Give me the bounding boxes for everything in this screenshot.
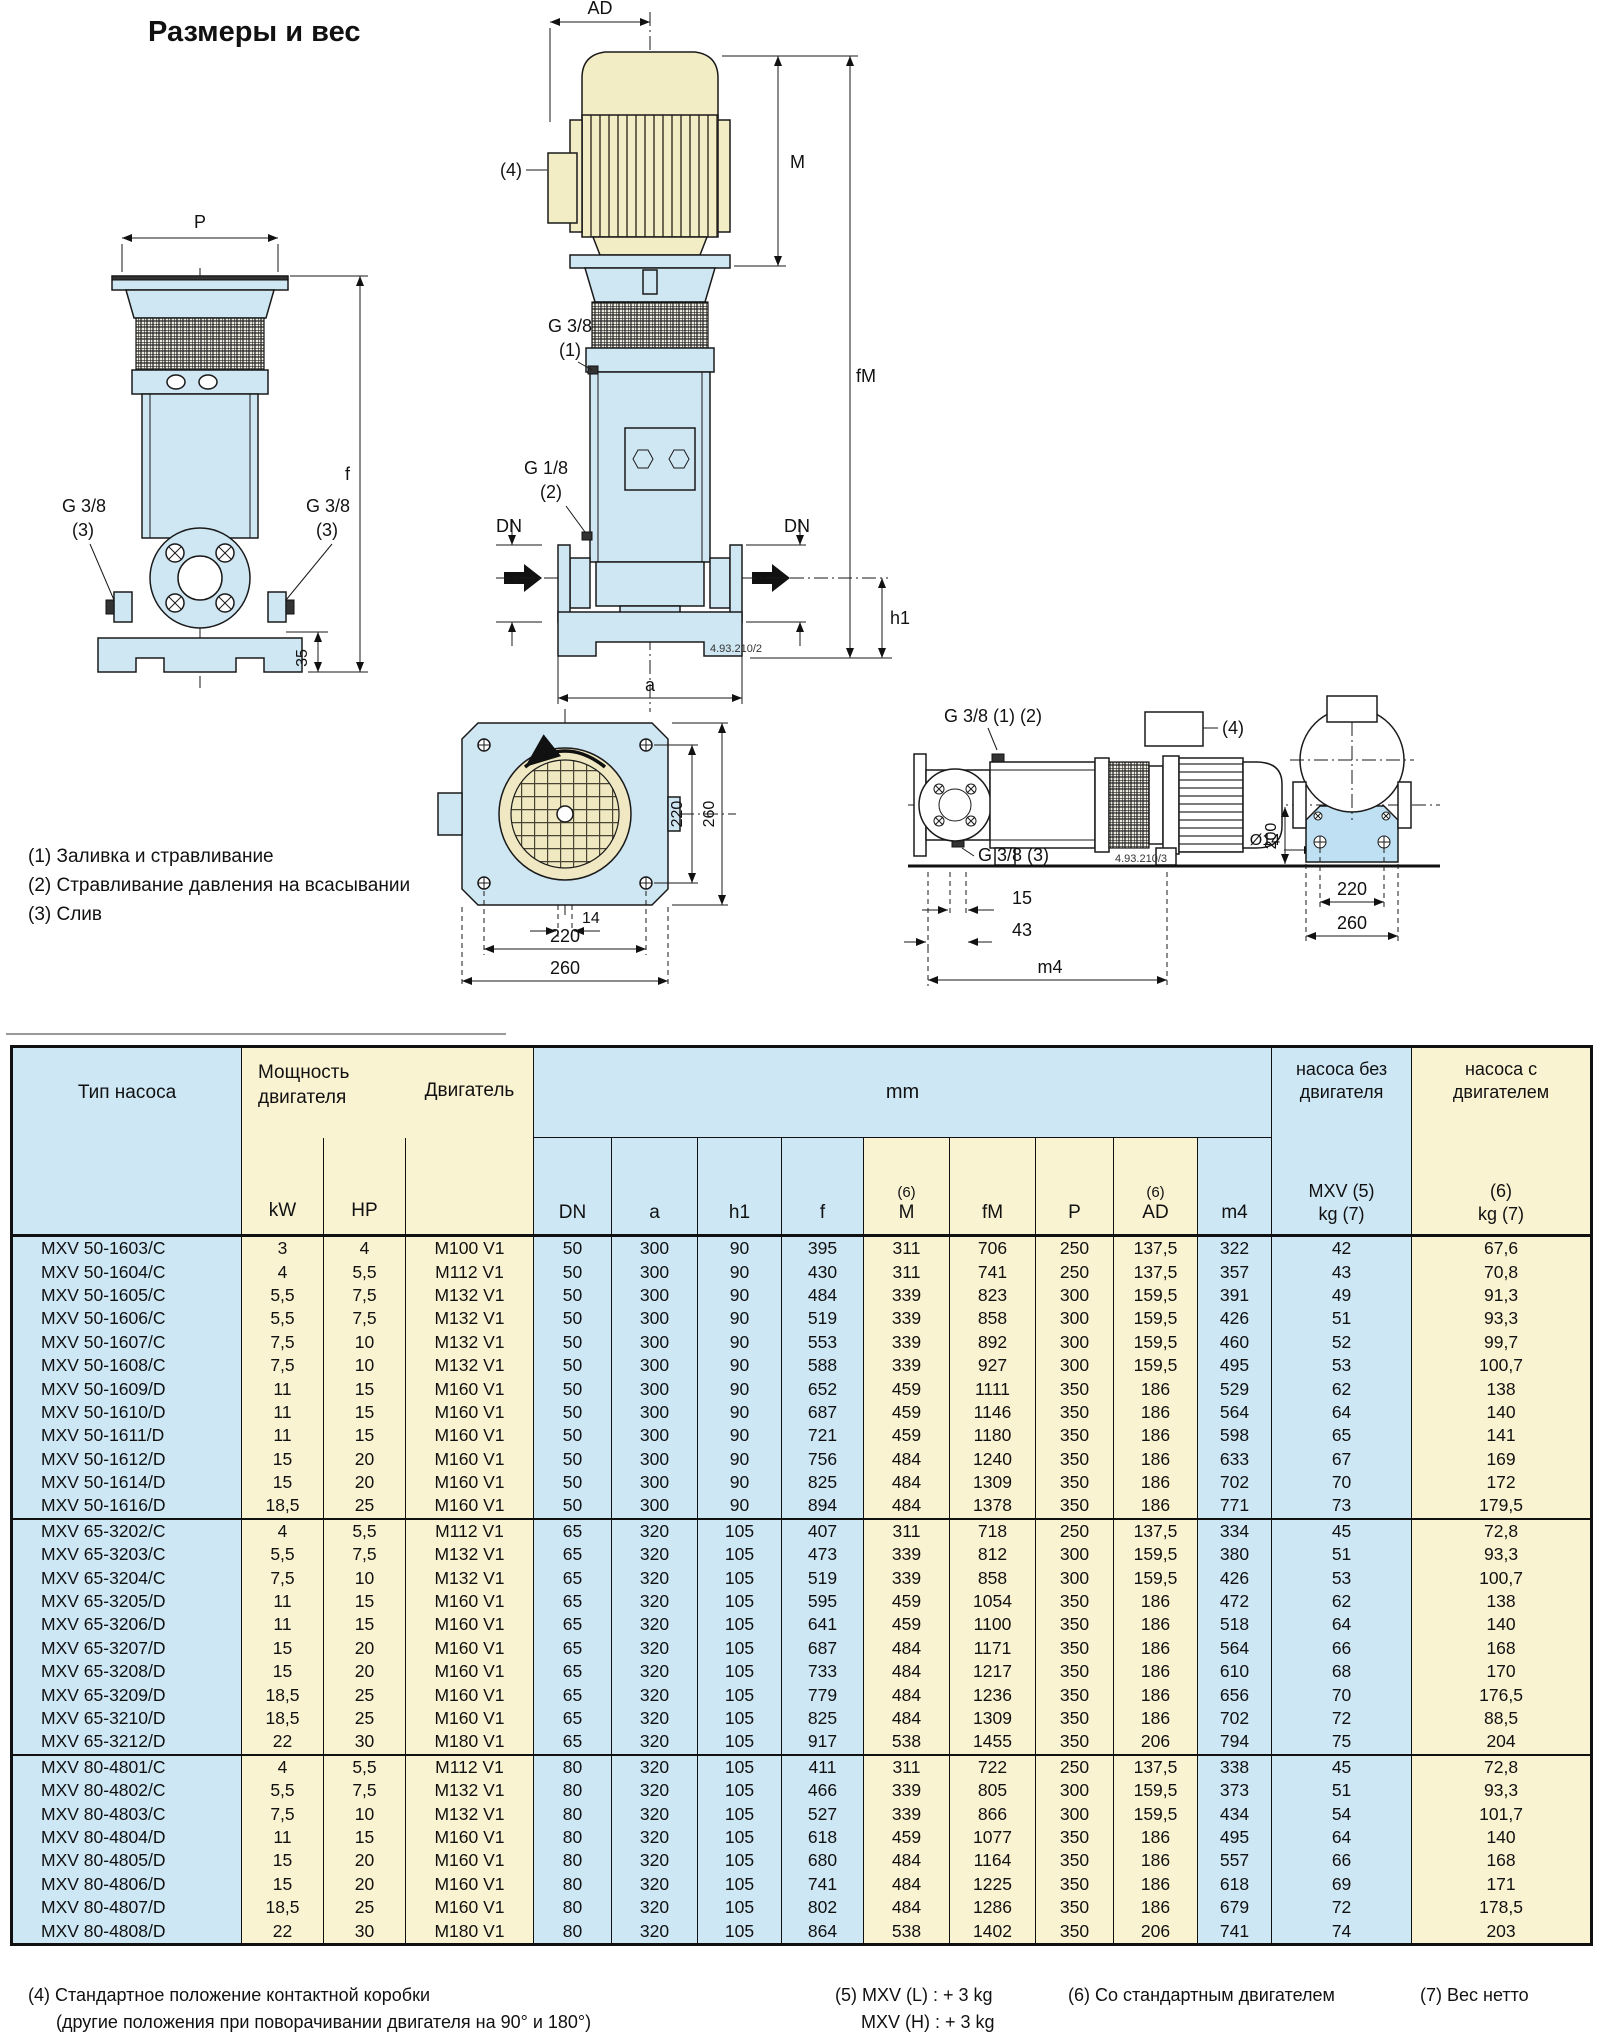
table-cell: 473 xyxy=(782,1543,864,1566)
table-cell: 1378 xyxy=(950,1494,1036,1518)
col-header-m4: m4 xyxy=(1198,1138,1272,1236)
table-cell: 1171 xyxy=(950,1637,1036,1660)
table-cell: 140 xyxy=(1412,1826,1592,1849)
table-cell: 15 xyxy=(324,1826,406,1849)
table-cell: 300 xyxy=(612,1448,698,1471)
table-cell: 484 xyxy=(864,1471,950,1494)
table-cell: M160 V1 xyxy=(406,1896,534,1919)
table-cell: 339 xyxy=(864,1566,950,1589)
table-cell: 300 xyxy=(612,1401,698,1424)
table-cell: 320 xyxy=(612,1637,698,1660)
table-cell: 484 xyxy=(864,1683,950,1706)
table-cell: 22 xyxy=(242,1919,324,1944)
table-cell: 779 xyxy=(782,1683,864,1706)
table-row: MXV 50-1611/D1115M160 V15030090721459118… xyxy=(12,1424,1592,1447)
table-row: MXV 50-1608/C7,510M132 V1503009058833992… xyxy=(12,1354,1592,1377)
table-cell: 484 xyxy=(864,1873,950,1896)
table-cell: 67,6 xyxy=(1412,1236,1592,1261)
table-cell: 320 xyxy=(612,1543,698,1566)
table-cell: M160 V1 xyxy=(406,1494,534,1518)
table-cell: 721 xyxy=(782,1424,864,1447)
motor xyxy=(548,52,730,268)
table-cell: 101,7 xyxy=(1412,1802,1592,1825)
table-cell: M160 V1 xyxy=(406,1401,534,1424)
table-row: MXV 80-4803/C7,510M132 V1803201055273398… xyxy=(12,1802,1592,1825)
table-cell: 90 xyxy=(698,1307,782,1330)
table-cell: M160 V1 xyxy=(406,1424,534,1447)
table-cell: 741 xyxy=(950,1260,1036,1283)
table-cell: 802 xyxy=(782,1896,864,1919)
table-cell: 20 xyxy=(324,1471,406,1494)
table-cell: 105 xyxy=(698,1543,782,1566)
table-cell: M112 V1 xyxy=(406,1755,534,1779)
table-cell: 1402 xyxy=(950,1919,1036,1944)
table-cell: 300 xyxy=(612,1494,698,1518)
table-cell: 426 xyxy=(1198,1307,1272,1330)
table-cell: 350 xyxy=(1036,1660,1114,1683)
table-cell: 380 xyxy=(1198,1543,1272,1566)
table-cell: 65 xyxy=(534,1590,612,1613)
table-cell: 519 xyxy=(782,1307,864,1330)
table-cell: 137,5 xyxy=(1114,1260,1198,1283)
port-ref-2: (2) xyxy=(540,482,562,502)
port-ref-3-left: (3) xyxy=(72,520,94,540)
dim-label-ad: AD xyxy=(587,0,612,18)
table-cell: MXV 65-3206/D xyxy=(12,1613,242,1636)
table-cell: 105 xyxy=(698,1590,782,1613)
table-cell: 350 xyxy=(1036,1377,1114,1400)
table-cell: 300 xyxy=(612,1424,698,1447)
table-cell: 1455 xyxy=(950,1730,1036,1754)
table-cell: 350 xyxy=(1036,1401,1114,1424)
table-cell: MXV 65-3203/C xyxy=(12,1543,242,1566)
dim-label-a: a xyxy=(645,675,656,695)
table-cell: 460 xyxy=(1198,1331,1272,1354)
pump-series-group: MXV 65-3202/C45,5M112 V16532010540731171… xyxy=(12,1519,1592,1755)
table-cell: 186 xyxy=(1114,1896,1198,1919)
table-cell: 45 xyxy=(1272,1519,1412,1543)
table-cell: 65 xyxy=(534,1519,612,1543)
table-row: MXV 80-4805/D1520M160 V18032010568048411… xyxy=(12,1849,1592,1872)
table-cell: 610 xyxy=(1198,1660,1272,1683)
table-cell: M160 V1 xyxy=(406,1873,534,1896)
table-cell: 75 xyxy=(1272,1730,1412,1754)
table-cell: 105 xyxy=(698,1826,782,1849)
table-cell: M112 V1 xyxy=(406,1260,534,1283)
dim-label-260: 260 xyxy=(1337,913,1367,933)
table-cell: 350 xyxy=(1036,1471,1114,1494)
table-cell: 350 xyxy=(1036,1849,1114,1872)
table-cell: 300 xyxy=(612,1377,698,1400)
footnote-7: (7) Вес нетто xyxy=(1420,1982,1529,2009)
table-cell: 459 xyxy=(864,1401,950,1424)
table-cell: 300 xyxy=(612,1331,698,1354)
table-cell: 894 xyxy=(782,1494,864,1518)
table-cell: 618 xyxy=(782,1826,864,1849)
table-cell: 7,5 xyxy=(242,1566,324,1589)
table-cell: MXV 65-3207/D xyxy=(12,1637,242,1660)
dimensions-table: Тип насоса Мощность двигателя Двигатель … xyxy=(10,1045,1593,1946)
table-cell: 733 xyxy=(782,1660,864,1683)
table-cell: 18,5 xyxy=(242,1896,324,1919)
table-cell: MXV 80-4808/D xyxy=(12,1919,242,1944)
table-cell: 138 xyxy=(1412,1590,1592,1613)
table-cell: M100 V1 xyxy=(406,1236,534,1261)
table-cell: 858 xyxy=(950,1307,1036,1330)
table-cell: M160 V1 xyxy=(406,1660,534,1683)
table-cell: 633 xyxy=(1198,1448,1272,1471)
table-row: MXV 80-4804/D1115M160 V18032010561845910… xyxy=(12,1826,1592,1849)
footnote-4: (4) Стандартное положение контактной кор… xyxy=(28,1982,591,2036)
table-cell: MXV 50-1610/D xyxy=(12,1401,242,1424)
table-cell: 49 xyxy=(1272,1284,1412,1307)
table-cell: 80 xyxy=(534,1873,612,1896)
table-cell: MXV 65-3202/C xyxy=(12,1519,242,1543)
table-cell: 495 xyxy=(1198,1354,1272,1377)
table-cell: 702 xyxy=(1198,1471,1272,1494)
table-cell: M180 V1 xyxy=(406,1919,534,1944)
table-cell: 741 xyxy=(782,1873,864,1896)
table-cell: 11 xyxy=(242,1401,324,1424)
table-cell: MXV 50-1611/D xyxy=(12,1424,242,1447)
table-cell: MXV 50-1607/C xyxy=(12,1331,242,1354)
table-cell: 105 xyxy=(698,1802,782,1825)
table-cell: 588 xyxy=(782,1354,864,1377)
table-cell: 90 xyxy=(698,1471,782,1494)
table-cell: 66 xyxy=(1272,1637,1412,1660)
end-view xyxy=(1290,696,1414,862)
table-cell: 51 xyxy=(1272,1779,1412,1802)
table-cell: 434 xyxy=(1198,1802,1272,1825)
table-cell: 72 xyxy=(1272,1707,1412,1730)
port-label-g38-right: G 3/8 xyxy=(306,496,350,516)
table-cell: 300 xyxy=(1036,1307,1114,1330)
table-cell: 339 xyxy=(864,1307,950,1330)
table-cell: 105 xyxy=(698,1896,782,1919)
col-header-kw: kW xyxy=(242,1138,324,1236)
table-cell: 171 xyxy=(1412,1873,1592,1896)
table-cell: 459 xyxy=(864,1424,950,1447)
legend-item: (2) Стравливание давления на всасывании xyxy=(28,871,410,900)
table-cell: 15 xyxy=(324,1424,406,1447)
table-cell: 11 xyxy=(242,1590,324,1613)
table-cell: 350 xyxy=(1036,1494,1114,1518)
table-cell: 5,5 xyxy=(242,1307,324,1330)
table-cell: M160 V1 xyxy=(406,1637,534,1660)
table-cell: 50 xyxy=(534,1236,612,1261)
table-cell: 10 xyxy=(324,1354,406,1377)
table-cell: M160 V1 xyxy=(406,1471,534,1494)
table-cell: 159,5 xyxy=(1114,1779,1198,1802)
table-row: MXV 65-3209/D18,525M160 V165320105779484… xyxy=(12,1683,1592,1706)
table-row: MXV 50-1609/D1115M160 V15030090652459111… xyxy=(12,1377,1592,1400)
col-header-p: P xyxy=(1036,1138,1114,1236)
table-cell: 722 xyxy=(950,1755,1036,1779)
table-cell: 141 xyxy=(1412,1424,1592,1447)
table-cell: 320 xyxy=(612,1896,698,1919)
table-cell: 3 xyxy=(242,1236,324,1261)
table-cell: 206 xyxy=(1114,1919,1198,1944)
table-cell: MXV 80-4803/C xyxy=(12,1802,242,1825)
table-cell: 350 xyxy=(1036,1637,1114,1660)
table-cell: 50 xyxy=(534,1260,612,1283)
table-cell: 172 xyxy=(1412,1471,1592,1494)
dim-label-220: 220 xyxy=(1337,879,1367,899)
table-row: MXV 50-1610/D1115M160 V15030090687459114… xyxy=(12,1401,1592,1424)
table-cell: 350 xyxy=(1036,1707,1114,1730)
table-cell: 105 xyxy=(698,1566,782,1589)
table-cell: 68 xyxy=(1272,1660,1412,1683)
table-cell: 350 xyxy=(1036,1613,1114,1636)
table-cell: 206 xyxy=(1114,1730,1198,1754)
table-cell: MXV 65-3204/C xyxy=(12,1566,242,1589)
table-cell: 159,5 xyxy=(1114,1566,1198,1589)
table-cell: 159,5 xyxy=(1114,1543,1198,1566)
pump-series-group: MXV 50-1603/C34M100 V1503009039531170625… xyxy=(12,1236,1592,1519)
legend-item: (1) Заливка и стравливание xyxy=(28,842,410,871)
table-cell: 65 xyxy=(534,1566,612,1589)
table-cell: 459 xyxy=(864,1826,950,1849)
table-cell: 73 xyxy=(1272,1494,1412,1518)
table-cell: MXV 50-1604/C xyxy=(12,1260,242,1283)
table-cell: 395 xyxy=(782,1236,864,1261)
table-cell: 484 xyxy=(864,1707,950,1730)
table-cell: 350 xyxy=(1036,1730,1114,1754)
table-cell: 90 xyxy=(698,1424,782,1447)
pump-horizontal-view-drawing: G 3/8 (1) (2) xyxy=(900,690,1600,1020)
table-cell: 917 xyxy=(782,1730,864,1754)
table-cell: 741 xyxy=(1198,1919,1272,1944)
table-cell: 679 xyxy=(1198,1896,1272,1919)
table-cell: 70,8 xyxy=(1412,1260,1592,1283)
table-row: MXV 50-1612/D1520M160 V15030090756484124… xyxy=(12,1448,1592,1471)
table-cell: 527 xyxy=(782,1802,864,1825)
table-cell: 322 xyxy=(1198,1236,1272,1261)
table-row: MXV 65-3206/D1115M160 V16532010564145911… xyxy=(12,1613,1592,1636)
table-cell: M160 V1 xyxy=(406,1590,534,1613)
table-cell: 320 xyxy=(612,1613,698,1636)
table-cell: 7,5 xyxy=(324,1307,406,1330)
table-cell: 519 xyxy=(782,1566,864,1589)
table-cell: 557 xyxy=(1198,1849,1272,1872)
dim-label-15: 15 xyxy=(1012,888,1032,908)
table-row: MXV 50-1616/D18,525M160 V150300908944841… xyxy=(12,1494,1592,1518)
table-cell: 90 xyxy=(698,1331,782,1354)
table-cell: 74 xyxy=(1272,1919,1412,1944)
table-cell: 338 xyxy=(1198,1755,1272,1779)
table-cell: MXV 50-1614/D xyxy=(12,1471,242,1494)
table-cell: 70 xyxy=(1272,1683,1412,1706)
table-cell: 702 xyxy=(1198,1707,1272,1730)
table-cell: M132 V1 xyxy=(406,1566,534,1589)
table-cell: 80 xyxy=(534,1849,612,1872)
table-cell: 93,3 xyxy=(1412,1779,1592,1802)
table-cell: 518 xyxy=(1198,1613,1272,1636)
terminal-box xyxy=(548,153,577,223)
table-cell: 320 xyxy=(612,1849,698,1872)
table-cell: 80 xyxy=(534,1802,612,1825)
table-cell: 311 xyxy=(864,1236,950,1261)
table-cell: 407 xyxy=(782,1519,864,1543)
table-cell: 311 xyxy=(864,1260,950,1283)
table-cell: 80 xyxy=(534,1826,612,1849)
table-cell: 72 xyxy=(1272,1896,1412,1919)
table-cell: 350 xyxy=(1036,1826,1114,1849)
table-cell: 43 xyxy=(1272,1260,1412,1283)
table-cell: 69 xyxy=(1272,1873,1412,1896)
table-cell: 300 xyxy=(1036,1779,1114,1802)
table-cell: 706 xyxy=(950,1236,1036,1261)
table-cell: 1100 xyxy=(950,1613,1036,1636)
table-cell: 10 xyxy=(324,1331,406,1354)
table-cell: 300 xyxy=(1036,1802,1114,1825)
col-header-dn: DN xyxy=(534,1138,612,1236)
dim-label-260-v: 260 xyxy=(701,801,718,828)
pump-front-view-drawing: P xyxy=(60,180,400,700)
table-cell: 300 xyxy=(1036,1331,1114,1354)
table-cell: 1217 xyxy=(950,1660,1036,1683)
table-cell: 10 xyxy=(324,1566,406,1589)
table-cell: 18,5 xyxy=(242,1707,324,1730)
table-cell: 250 xyxy=(1036,1236,1114,1261)
table-cell: 652 xyxy=(782,1377,864,1400)
table-cell: 65 xyxy=(534,1683,612,1706)
legend-notes: (1) Заливка и стравливание (2) Стравлива… xyxy=(28,842,410,929)
table-cell: 411 xyxy=(782,1755,864,1779)
table-cell: 159,5 xyxy=(1114,1354,1198,1377)
table-cell: M132 V1 xyxy=(406,1543,534,1566)
pump-body xyxy=(98,276,302,672)
table-cell: 20 xyxy=(324,1873,406,1896)
table-cell: 105 xyxy=(698,1683,782,1706)
table-cell: 357 xyxy=(1198,1260,1272,1283)
table-cell: 553 xyxy=(782,1331,864,1354)
footnote-6: (6) Со стандартным двигателем xyxy=(1068,1982,1335,2009)
table-cell: 823 xyxy=(950,1284,1036,1307)
table-cell: 159,5 xyxy=(1114,1331,1198,1354)
table-cell: 105 xyxy=(698,1730,782,1754)
table-cell: MXV 65-3209/D xyxy=(12,1683,242,1706)
table-row: MXV 65-3202/C45,5M112 V16532010540731171… xyxy=(12,1519,1592,1543)
table-cell: 186 xyxy=(1114,1660,1198,1683)
footnote-5: (5) MXV (L) : + 3 kg MXV (H) : + 3 kg xyxy=(835,1982,995,2036)
table-cell: 50 xyxy=(534,1494,612,1518)
table-cell: 179,5 xyxy=(1412,1494,1592,1518)
table-cell: 15 xyxy=(324,1377,406,1400)
table-cell: MXV 65-3212/D xyxy=(12,1730,242,1754)
table-cell: MXV 80-4807/D xyxy=(12,1896,242,1919)
table-header: Тип насоса Мощность двигателя Двигатель … xyxy=(12,1047,1592,1236)
table-cell: MXV 50-1608/C xyxy=(12,1354,242,1377)
col-header-power-line2: двигателя xyxy=(258,1087,346,1108)
table-cell: 459 xyxy=(864,1377,950,1400)
table-cell: M160 V1 xyxy=(406,1683,534,1706)
table-cell: 7,5 xyxy=(242,1331,324,1354)
table-cell: 484 xyxy=(864,1448,950,1471)
table-cell: 564 xyxy=(1198,1637,1272,1660)
table-cell: 7,5 xyxy=(242,1354,324,1377)
table-cell: 320 xyxy=(612,1802,698,1825)
drawing-code: 4.93.210/2 xyxy=(710,643,762,655)
table-cell: 426 xyxy=(1198,1566,1272,1589)
table-cell: 90 xyxy=(698,1354,782,1377)
table-cell: 339 xyxy=(864,1354,950,1377)
table-cell: 50 xyxy=(534,1284,612,1307)
dim-label-fm: fM xyxy=(856,366,876,386)
table-cell: 484 xyxy=(782,1284,864,1307)
table-cell: 866 xyxy=(950,1802,1036,1825)
table-cell: 350 xyxy=(1036,1424,1114,1447)
port-label-g38-3: G 3/8 (3) xyxy=(978,845,1049,865)
table-cell: M160 V1 xyxy=(406,1377,534,1400)
table-cell: 1236 xyxy=(950,1683,1036,1706)
table-cell: 15 xyxy=(242,1849,324,1872)
table-cell: 300 xyxy=(1036,1354,1114,1377)
table-cell: 42 xyxy=(1272,1236,1412,1261)
table-cell: 805 xyxy=(950,1779,1036,1802)
table-cell: M132 V1 xyxy=(406,1284,534,1307)
table-cell: 4 xyxy=(242,1755,324,1779)
table-cell: 466 xyxy=(782,1779,864,1802)
datasheet-page: Размеры и вес xyxy=(0,0,1600,2040)
table-cell: 5,5 xyxy=(324,1260,406,1283)
table-cell: 459 xyxy=(864,1590,950,1613)
table-cell: 99,7 xyxy=(1412,1331,1592,1354)
table-cell: 1225 xyxy=(950,1873,1036,1896)
page-title: Размеры и вес xyxy=(148,16,360,49)
table-cell: 65 xyxy=(534,1543,612,1566)
table-cell: 300 xyxy=(612,1307,698,1330)
table-row: MXV 65-3212/D2230M180 V16532010591753814… xyxy=(12,1730,1592,1754)
table-cell: 339 xyxy=(864,1779,950,1802)
table-cell: 825 xyxy=(782,1471,864,1494)
col-header-motor: Двигатель xyxy=(406,1047,534,1236)
legend-item: (3) Слив xyxy=(28,900,410,929)
table-cell: 15 xyxy=(324,1401,406,1424)
col-header-h1: h1 xyxy=(698,1138,782,1236)
table-cell: M132 V1 xyxy=(406,1779,534,1802)
table-cell: 250 xyxy=(1036,1519,1114,1543)
table-row: MXV 50-1606/C5,57,5M132 V150300905193398… xyxy=(12,1307,1592,1330)
table-cell: 320 xyxy=(612,1779,698,1802)
table-row: MXV 65-3205/D1115M160 V16532010559545910… xyxy=(12,1590,1592,1613)
table-cell: MXV 80-4804/D xyxy=(12,1826,242,1849)
port-label-g38-left: G 3/8 xyxy=(62,496,106,516)
table-cell: 472 xyxy=(1198,1590,1272,1613)
table-row: MXV 80-4807/D18,525M160 V180320105802484… xyxy=(12,1896,1592,1919)
col-header-power: Мощность двигателя xyxy=(242,1047,406,1138)
table-cell: 100,7 xyxy=(1412,1566,1592,1589)
dim-label-f: f xyxy=(345,464,351,484)
table-cell: 1286 xyxy=(950,1896,1036,1919)
table-cell: 105 xyxy=(698,1779,782,1802)
table-cell: 892 xyxy=(950,1331,1036,1354)
table-cell: MXV 50-1603/C xyxy=(12,1236,242,1261)
table-cell: 320 xyxy=(612,1919,698,1944)
table-row: MXV 50-1605/C5,57,5M132 V150300904843398… xyxy=(12,1284,1592,1307)
table-cell: MXV 80-4801/C xyxy=(12,1755,242,1779)
table-cell: 90 xyxy=(698,1284,782,1307)
table-cell: 7,5 xyxy=(242,1802,324,1825)
table-cell: 641 xyxy=(782,1613,864,1636)
table-cell: 350 xyxy=(1036,1919,1114,1944)
table-cell: 65 xyxy=(534,1707,612,1730)
table-cell: 80 xyxy=(534,1755,612,1779)
table-cell: 538 xyxy=(864,1730,950,1754)
table-cell: 7,5 xyxy=(324,1779,406,1802)
table-cell: MXV 80-4802/C xyxy=(12,1779,242,1802)
table-cell: 4 xyxy=(242,1519,324,1543)
